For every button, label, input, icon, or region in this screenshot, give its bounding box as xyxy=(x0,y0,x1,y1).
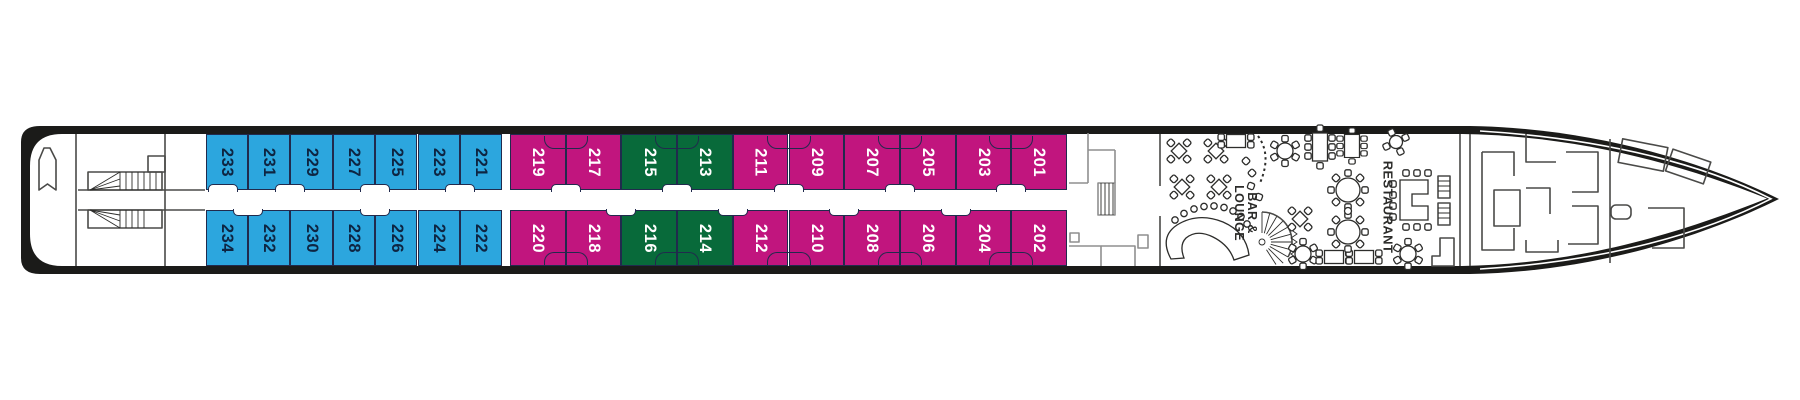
cabin-223[interactable]: 223 xyxy=(418,134,460,190)
cabin-227[interactable]: 227 xyxy=(333,134,375,190)
cabin-pair-arc xyxy=(655,136,699,149)
cabin-234[interactable]: 234 xyxy=(206,210,248,266)
cabin-pair-arc xyxy=(544,136,588,149)
cabin-pair-arc xyxy=(655,252,699,265)
cabin-225[interactable]: 225 xyxy=(375,134,417,190)
cabin-number: 219 xyxy=(528,147,547,176)
cabin-number: 225 xyxy=(387,147,406,176)
cabin-number: 222 xyxy=(472,223,491,252)
cabin-number: 211 xyxy=(751,148,770,176)
cabin-number: 223 xyxy=(429,147,448,176)
cabin-number: 218 xyxy=(584,223,603,252)
cabin-number: 206 xyxy=(918,223,937,252)
cabin-pair-arc xyxy=(767,136,811,149)
cabin-pair-arc xyxy=(767,252,811,265)
cabin-pair-arc xyxy=(878,252,922,265)
cabin-228[interactable]: 228 xyxy=(333,210,375,266)
cabin-number: 209 xyxy=(807,147,826,176)
cabin-number: 205 xyxy=(918,147,937,176)
cabin-number: 228 xyxy=(344,223,363,252)
cabin-number: 215 xyxy=(640,147,659,176)
cabin-number: 214 xyxy=(695,223,714,252)
cabin-number: 212 xyxy=(751,223,770,252)
cabin-number: 229 xyxy=(302,147,321,176)
cabin-number: 233 xyxy=(217,147,236,176)
ship-deck-plan: 2332312292272252232212192172152132112092… xyxy=(0,0,1800,400)
cabin-pair-arc xyxy=(989,252,1033,265)
cabin-number: 231 xyxy=(260,147,279,176)
bar-lounge-label: BAR & LOUNGE xyxy=(1232,185,1258,241)
cabin-number: 234 xyxy=(217,223,236,252)
cabin-number: 210 xyxy=(807,223,826,252)
cabin-number: 213 xyxy=(695,147,714,176)
cabin-224[interactable]: 224 xyxy=(418,210,460,266)
cabin-number: 217 xyxy=(584,147,603,176)
cabin-number: 232 xyxy=(260,223,279,252)
cabin-number: 230 xyxy=(302,223,321,252)
cabin-number: 224 xyxy=(429,223,448,252)
bar-lounge-label-line2: LOUNGE xyxy=(1232,185,1245,241)
cabin-number: 216 xyxy=(640,223,659,252)
cabin-229[interactable]: 229 xyxy=(290,134,332,190)
cabin-221[interactable]: 221 xyxy=(460,134,502,190)
cabin-233[interactable]: 233 xyxy=(206,134,248,190)
cabin-number: 221 xyxy=(472,147,491,176)
corridor xyxy=(203,192,1069,209)
cabin-226[interactable]: 226 xyxy=(375,210,417,266)
cabin-number: 226 xyxy=(387,223,406,252)
cabin-number: 207 xyxy=(863,147,882,176)
cabin-number: 204 xyxy=(974,223,993,252)
bar-lounge-label-line1: BAR & xyxy=(1245,185,1258,241)
restaurant-label: RESTAURANT xyxy=(1382,161,1395,254)
cabin-number: 220 xyxy=(528,223,547,252)
cabin-pair-arc xyxy=(989,136,1033,149)
cabin-number: 227 xyxy=(344,147,363,176)
cabin-number: 203 xyxy=(974,147,993,176)
cabin-232[interactable]: 232 xyxy=(248,210,290,266)
cabin-pair-arc xyxy=(544,252,588,265)
cabin-222[interactable]: 222 xyxy=(460,210,502,266)
cabin-231[interactable]: 231 xyxy=(248,134,290,190)
cabin-number: 202 xyxy=(1030,223,1049,252)
cabin-number: 208 xyxy=(863,223,882,252)
cabin-pair-arc xyxy=(878,136,922,149)
cabin-230[interactable]: 230 xyxy=(290,210,332,266)
cabin-number: 201 xyxy=(1030,147,1049,176)
